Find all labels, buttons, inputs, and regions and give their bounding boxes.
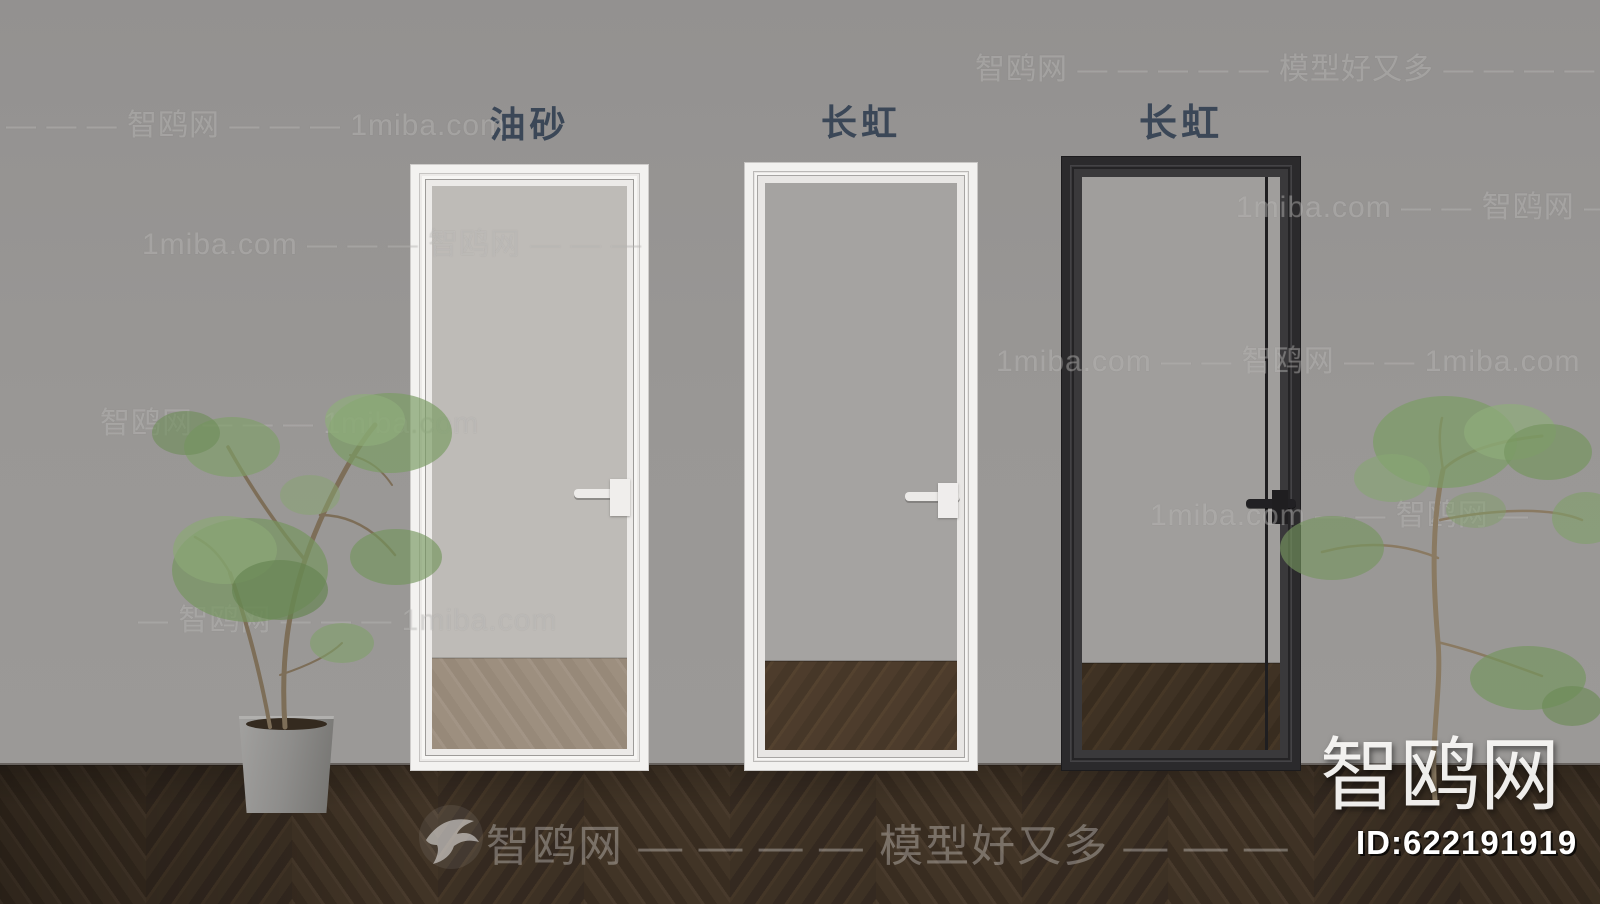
door-clear-white — [745, 163, 977, 770]
watermark-text: 1miba.com — — — 智鸥网 — — — — [142, 219, 642, 263]
door-label-changhong-2: 长虹 — [1062, 92, 1300, 147]
door-label-changhong-1: 长虹 — [745, 94, 977, 146]
glass-view-wall — [765, 183, 957, 661]
frosted-haze — [432, 186, 627, 749]
potted-tree-left — [120, 375, 460, 735]
bird-logo-icon — [418, 804, 484, 870]
door-glass — [765, 183, 957, 750]
model-id-badge: ID:622191919 — [1356, 824, 1577, 862]
glass-view-floor — [1082, 663, 1280, 750]
watermark-text: 智鸥网 — — — — — 模型好又多 — — — — — [975, 44, 1595, 88]
watermark-text: 1miba.com — — 智鸥网 — — — [1236, 182, 1600, 226]
door-tinted-black — [1062, 157, 1300, 770]
glass-horizon-line — [765, 660, 957, 662]
door-handle-plate — [610, 479, 630, 516]
site-logo: 智鸥网 — [1320, 737, 1560, 817]
glass-view-floor — [765, 661, 957, 750]
watermark-text: 1miba.com — — 智鸥网 — — 1miba.com — [996, 336, 1580, 380]
watermark-banner: 智鸥网 — — — — 模型好又多 — — — — [486, 810, 1290, 874]
door-glass — [1082, 177, 1280, 750]
scene: 油砂 长虹 长虹 智鸥网 — — — — — 模型好又多 — — — — — —… — [0, 0, 1600, 904]
glass-view-wall — [1082, 177, 1280, 663]
door-handle-plate — [938, 483, 958, 518]
door-glass — [432, 186, 627, 749]
glass-horizon-line — [1082, 662, 1280, 664]
watermark-text: — — — 智鸥网 — — — 1miba.com — [6, 100, 506, 144]
